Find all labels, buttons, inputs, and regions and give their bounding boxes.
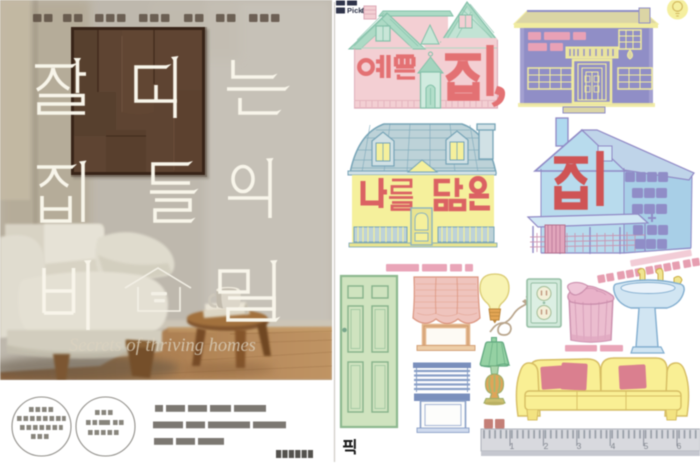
- svg-text:Secrets of thriving homes: Secrets of thriving homes: [69, 336, 256, 356]
